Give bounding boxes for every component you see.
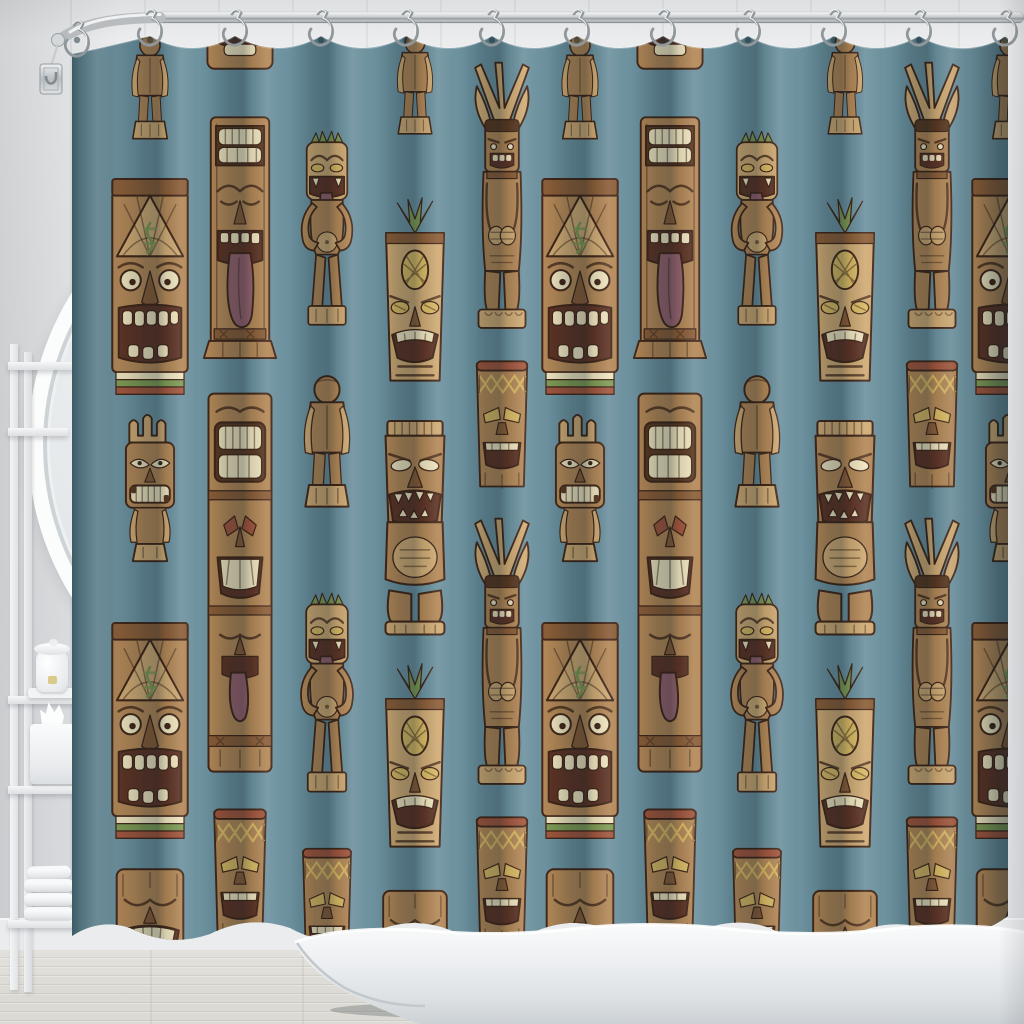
curtain-rod-assembly	[0, 0, 1024, 140]
shelf-bar	[8, 428, 68, 436]
freestanding-bathtub	[295, 924, 1024, 1024]
shelf-rail	[10, 344, 18, 990]
shower-curtain	[72, 30, 1008, 946]
folded-towel	[24, 879, 74, 892]
rod-bar	[155, 12, 1024, 23]
bracket-wire	[51, 44, 58, 66]
folded-towel	[27, 865, 71, 879]
bathroom-scene	[0, 0, 1024, 1024]
shelf-board	[8, 786, 74, 794]
shelf-bar	[8, 362, 74, 370]
curtain-edge-shade	[72, 30, 1008, 946]
ceramic-jar	[36, 650, 68, 692]
jar-label	[48, 676, 57, 684]
jar-knob	[49, 639, 58, 646]
bathtub-group	[0, 900, 1024, 1024]
tissue-box	[30, 724, 74, 784]
wall-shadow-right	[998, 0, 1024, 1024]
